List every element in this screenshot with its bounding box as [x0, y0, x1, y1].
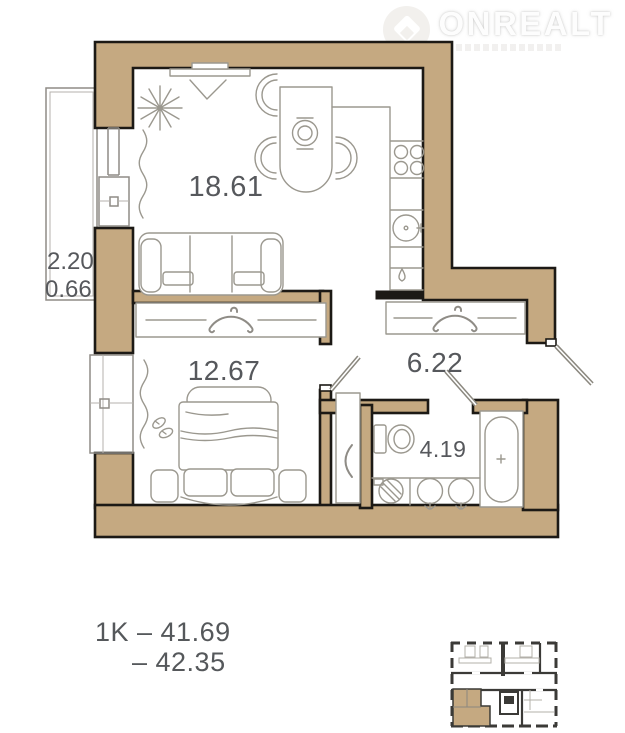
entry-door-swing [556, 346, 592, 384]
curtain-living [139, 130, 147, 218]
summary-line1: 1K – 41.69 [95, 617, 231, 647]
bedroom-window [90, 355, 133, 453]
bedroom-door-leaf [336, 393, 360, 503]
sofa [139, 233, 283, 295]
living-area-label: 18.61 [188, 171, 263, 203]
curtain-bedroom [140, 360, 148, 448]
kitchen-counter [332, 107, 424, 290]
summary-line2: – 42.35 [132, 647, 231, 677]
floor-key-plan [448, 640, 560, 733]
floorplan-page: ONREALT [0, 0, 625, 733]
washing-machine-icon [374, 479, 403, 503]
dining-table [280, 87, 332, 192]
hall-area-label: 6.22 [407, 347, 464, 378]
bedroom-area-label: 12.67 [188, 355, 261, 386]
toilet-icon [374, 425, 414, 453]
bathroom-area-label: 4.19 [420, 436, 467, 462]
wardrobe [136, 303, 326, 337]
highlighted-unit [453, 689, 490, 726]
hall-coat-rack [386, 302, 525, 334]
stove-icon [395, 146, 424, 175]
slippers-icon [151, 416, 174, 440]
spout-icon [399, 269, 405, 281]
kitchen-sink-icon [393, 215, 424, 241]
bed [179, 387, 278, 505]
nightstand-right [279, 470, 306, 502]
balcony-area-coeff-label: 0.66 [45, 276, 92, 303]
plant-icon [138, 86, 182, 130]
nightstand-left [151, 470, 178, 502]
balcony-door-window [99, 128, 129, 226]
balcony-area-label: 2.20 [47, 248, 94, 275]
bedroom-door-swing [331, 357, 359, 390]
apartment-summary: 1K – 41.69 – 42.35 [95, 617, 231, 677]
bathtub-icon [480, 411, 523, 507]
floorplan-drawing: 18.61 12.67 6.22 4.19 2.20 0.66 [0, 0, 625, 733]
tv-unit [170, 63, 250, 99]
